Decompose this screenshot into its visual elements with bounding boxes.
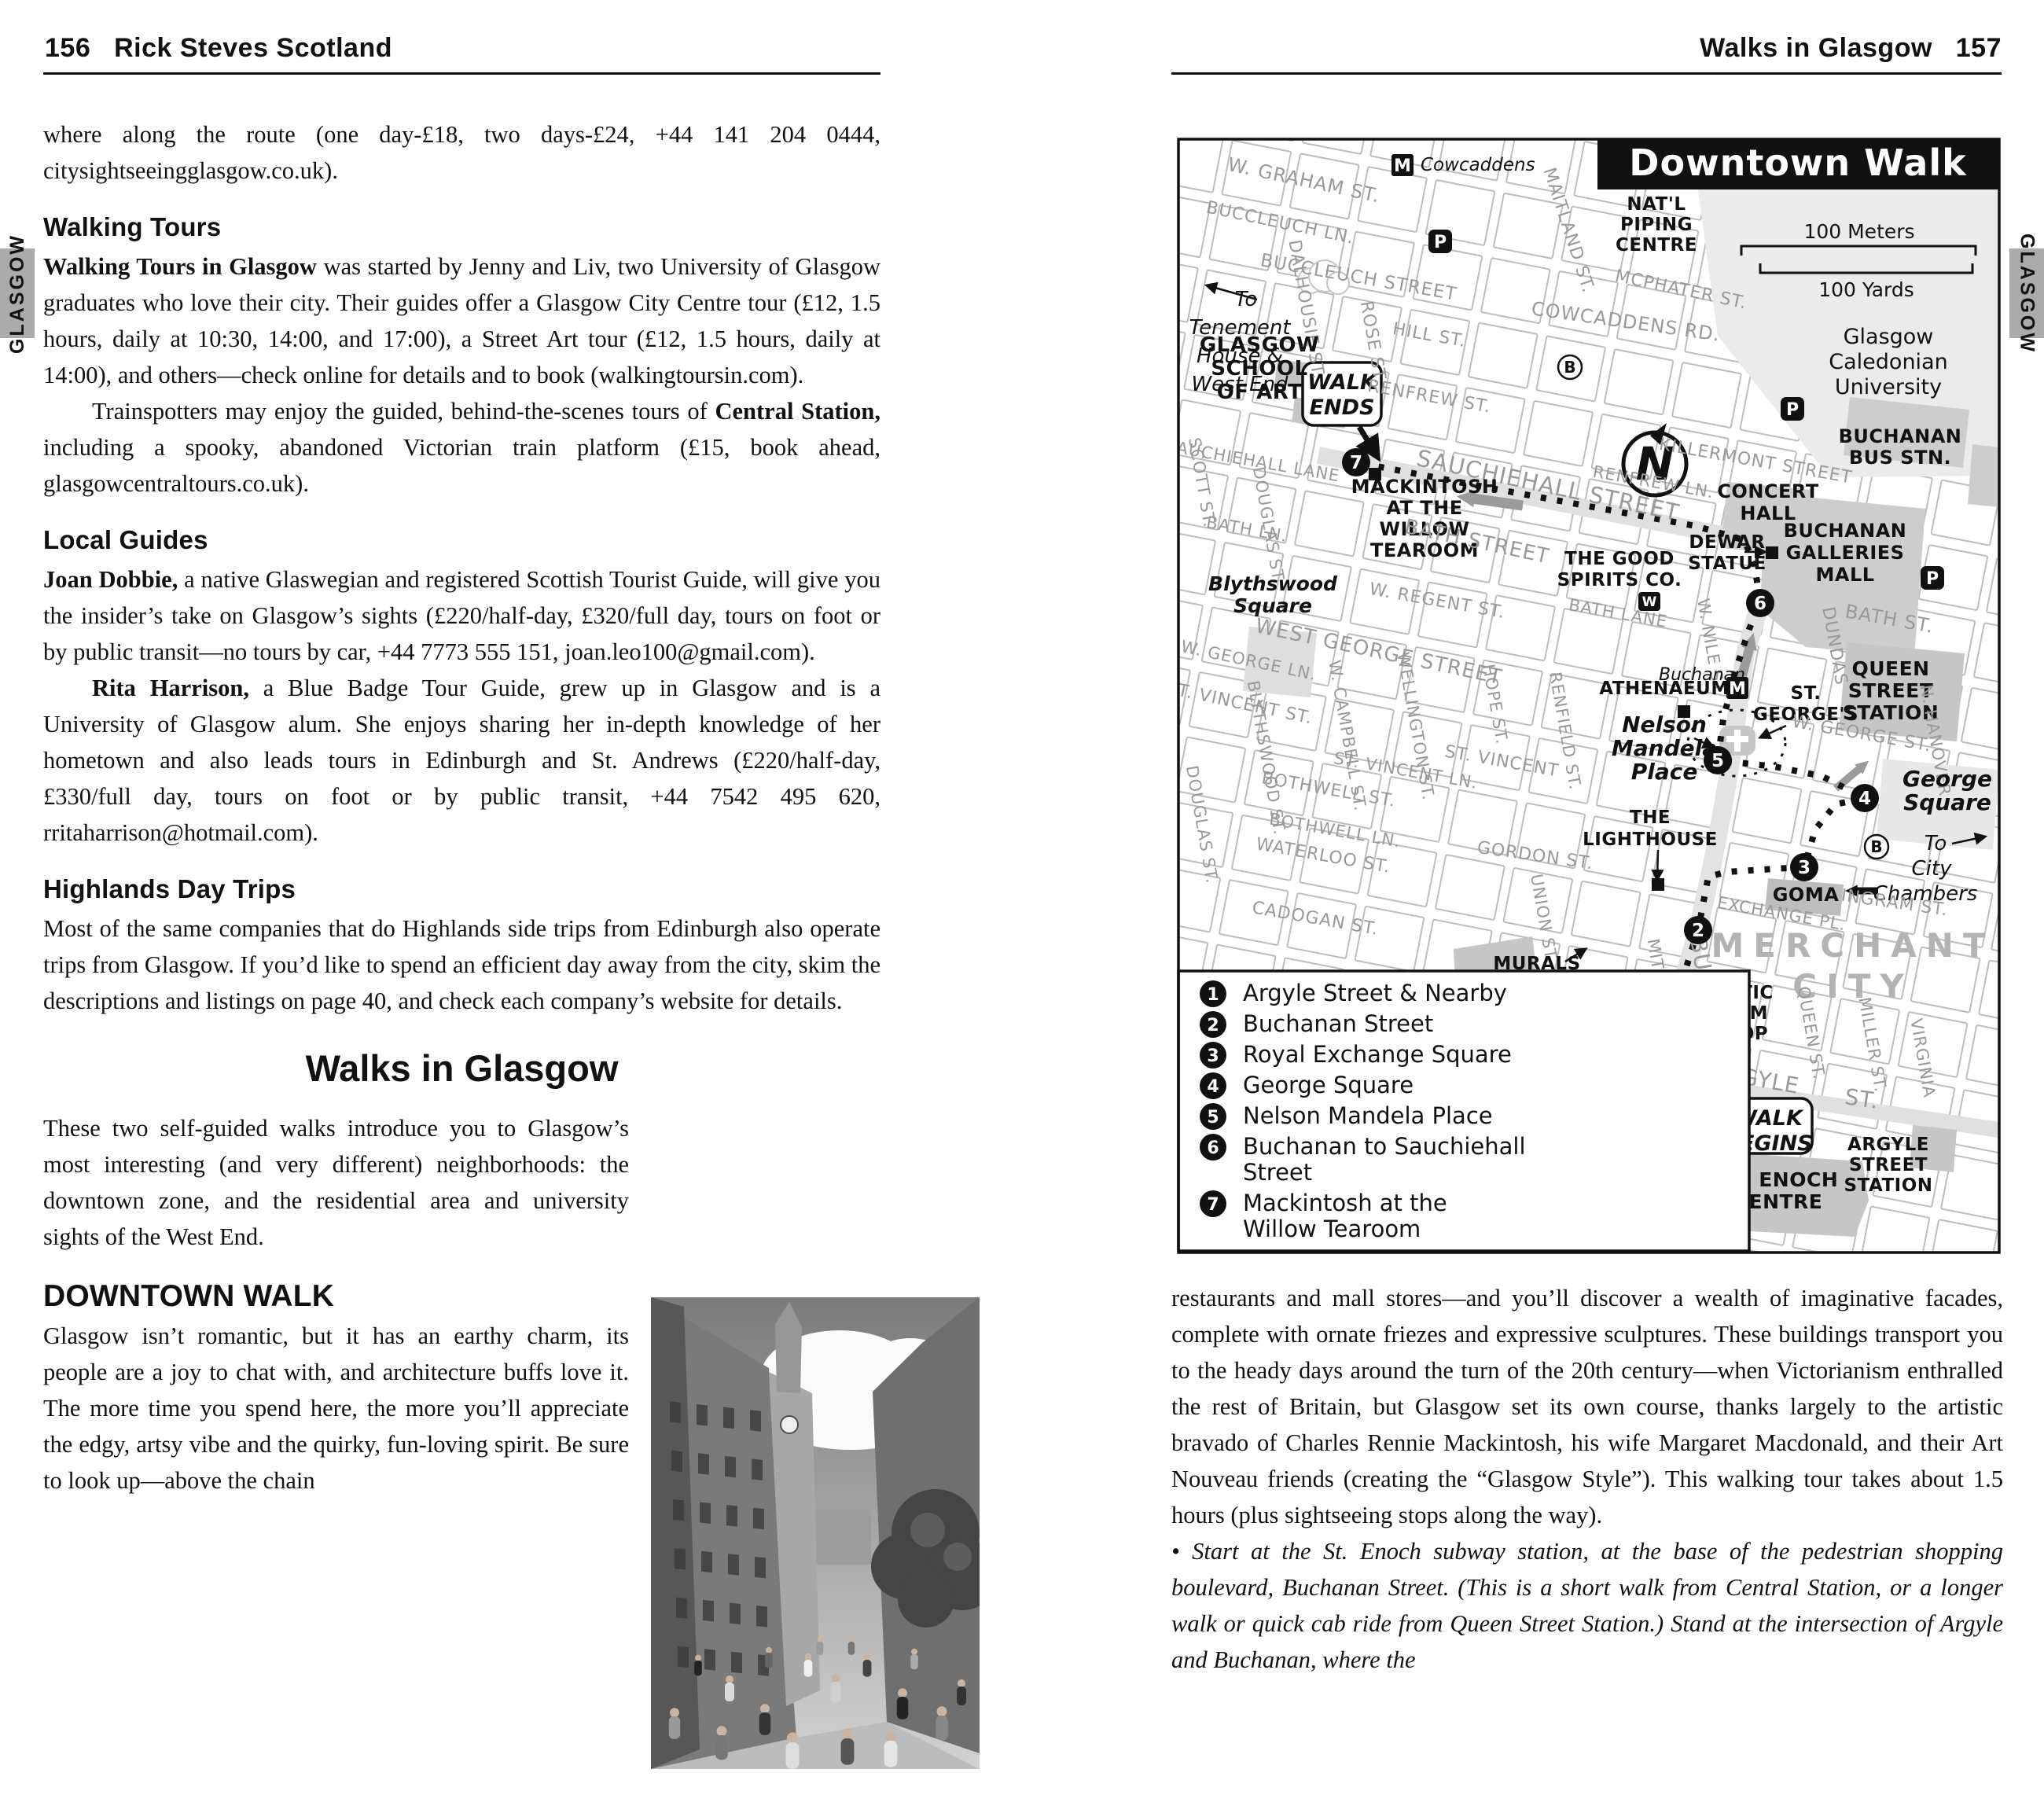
map-label: ARGYLE: [1847, 1135, 1929, 1155]
book-spread: 156 Rick Steves Scotland Walks in Glasgo…: [0, 0, 2044, 1817]
map-label: City: [1912, 857, 1953, 881]
map-legend: 1Argyle Street & Nearby2Buchanan Street3…: [1178, 971, 1749, 1251]
map-title: Downtown Walk: [1629, 142, 1967, 184]
map-label: STREET: [1849, 1155, 1928, 1175]
map-label: AT THE: [1386, 497, 1462, 519]
legend-item: Buchanan to Sauchiehall: [1243, 1133, 1526, 1160]
map-label: CENTRE: [1616, 235, 1697, 256]
svg-text:B: B: [1564, 358, 1575, 377]
map-label: MALL: [1815, 564, 1874, 586]
map-label: STATUE: [1688, 554, 1766, 574]
heading-highlands-day-trips: Highlands Day Trips: [43, 871, 880, 907]
heading-downtown-walk: DOWNTOWN WALK: [43, 1278, 629, 1315]
legend-item: Mackintosh at the: [1243, 1190, 1447, 1216]
svg-text:P: P: [1926, 569, 1939, 589]
left-running-head: 156 Rick Steves Scotland: [45, 33, 392, 64]
svg-text:6: 6: [1207, 1138, 1219, 1158]
svg-text:2: 2: [1207, 1016, 1219, 1035]
paragraph: Glasgow isn’t romantic, but it has an ea…: [43, 1318, 629, 1499]
svg-text:7: 7: [1207, 1195, 1219, 1215]
map-label: To: [1925, 832, 1947, 855]
svg-text:M: M: [1394, 156, 1411, 176]
map-label: ST.: [1844, 1083, 1881, 1114]
svg-text:4: 4: [1207, 1077, 1219, 1097]
heading-local-guides: Local Guides: [43, 522, 880, 558]
right-running-title: Walks in Glasgow: [1700, 33, 1932, 63]
map-label: GALLERIES: [1786, 542, 1905, 564]
map-label: THE GOOD: [1564, 549, 1675, 569]
map-label: BUCHANAN: [1839, 425, 1962, 447]
glasgow-tab-left: GLASGOW: [0, 248, 35, 338]
right-page-body: restaurants and mall stores—and you’ll d…: [1171, 1280, 2003, 1678]
right-header-rule: [1171, 72, 2002, 75]
map-label: Blythswood: [1208, 572, 1338, 595]
legend-item: Street: [1243, 1159, 1312, 1186]
map-label: CONCERT: [1717, 480, 1819, 502]
sight-marker: [1766, 546, 1778, 559]
map-label: NAT'L: [1627, 194, 1686, 215]
map-label: Nelson: [1622, 712, 1707, 737]
paragraph: Trainspotters may enjoy the guided, behi…: [43, 393, 880, 502]
svg-text:P: P: [1434, 233, 1447, 252]
legend-item: Willow Tearoom: [1243, 1216, 1421, 1242]
paragraph: Joan Dobbie, a native Glaswegian and reg…: [43, 561, 880, 670]
downtown-walk-map: NMMMPPPPBBWWALKENDSWALKBEGINSW. GRAHAM S…: [1177, 138, 2001, 1254]
paragraph: Rita Harrison, a Blue Badge Tour Guide, …: [43, 670, 880, 851]
svg-text:1: 1: [1207, 985, 1219, 1005]
svg-text:ENDS: ENDS: [1310, 395, 1375, 420]
map-label: GOMA: [1773, 884, 1840, 906]
paragraph: Walking Tours in Glasgow was started by …: [43, 248, 880, 393]
map-label: QUEEN: [1851, 657, 1929, 680]
map-label: Place: [1631, 759, 1698, 785]
map-label: LIGHTHOUSE: [1583, 829, 1718, 850]
svg-text:3: 3: [1207, 1046, 1219, 1066]
legend-item: Buchanan Street: [1243, 1010, 1433, 1037]
map-label: 100 Yards: [1818, 278, 1914, 301]
map-label: DEWAR: [1689, 532, 1765, 553]
svg-text:B: B: [1870, 837, 1882, 856]
map-label: George: [1902, 766, 1992, 792]
legend-item: Nelson Mandela Place: [1243, 1102, 1493, 1129]
heading-walking-tours: Walking Tours: [43, 209, 880, 245]
paragraph: restaurants and mall stores—and you’ll d…: [1171, 1280, 2003, 1533]
paragraph-start-direction: • Start at the St. Enoch subway station,…: [1171, 1533, 2003, 1678]
street-photo: [651, 1297, 980, 1769]
svg-text:7: 7: [1350, 453, 1362, 473]
map-label: ST.: [1791, 683, 1822, 704]
map-label: Cowcaddens: [1421, 155, 1535, 175]
paragraph: where along the route (one day-£18, two …: [43, 116, 880, 189]
map-label: Caledonian: [1829, 350, 1947, 374]
map-label: Square: [1233, 594, 1312, 617]
paragraph: These two self-guided walks introduce yo…: [43, 1110, 629, 1255]
left-page-body: where along the route (one day-£18, two …: [43, 116, 880, 1499]
map-title-bar: Downtown Walk: [1597, 139, 1999, 189]
svg-text:4: 4: [1858, 789, 1871, 809]
map-label: THE: [1630, 807, 1671, 828]
walks-intro-column: These two self-guided walks introduce yo…: [43, 1110, 629, 1499]
map-label: Mandela: [1612, 735, 1717, 761]
map-label: University: [1835, 375, 1942, 399]
map-label: STATION: [1844, 1175, 1932, 1196]
map-label: SPIRITS CO.: [1557, 570, 1682, 590]
svg-text:3: 3: [1798, 858, 1811, 878]
paragraph: Most of the same companies that do Highl…: [43, 910, 880, 1019]
right-running-head: Walks in Glasgow 157: [1171, 33, 2002, 64]
map-label: GLASGOW: [1200, 333, 1319, 357]
map-label: MACKINTOSH: [1351, 476, 1498, 498]
map-label: BUCHANAN: [1784, 520, 1907, 542]
map-label: Glasgow: [1844, 325, 1934, 349]
map-label: BUS STN.: [1849, 447, 1951, 469]
right-page-number: 157: [1956, 33, 2002, 63]
map-label: OF ART: [1217, 381, 1303, 404]
map-label: To: [1235, 288, 1258, 311]
section-title-walks-in-glasgow: Walks in Glasgow: [43, 1050, 880, 1087]
map-label: 100 Meters: [1803, 220, 1914, 243]
left-running-title: Rick Steves Scotland: [114, 33, 392, 63]
map-label: PIPING: [1620, 215, 1693, 235]
sight-marker: [1652, 878, 1664, 891]
svg-text:2: 2: [1692, 921, 1704, 941]
svg-text:5: 5: [1207, 1108, 1219, 1127]
map-label: SCHOOL: [1211, 357, 1307, 381]
svg-text:6: 6: [1754, 594, 1766, 614]
legend-item: Argyle Street & Nearby: [1243, 980, 1507, 1006]
map-building: [1968, 444, 1999, 507]
map-label: MERCHANT: [1711, 926, 1994, 965]
glasgow-tab-right: GLASGOW: [2009, 248, 2044, 338]
map-label: Buchanan: [1659, 665, 1745, 685]
map-label: Square: [1903, 789, 1991, 815]
left-buildings: [651, 1297, 820, 1769]
svg-text:P: P: [1786, 400, 1799, 420]
legend-item: Royal Exchange Square: [1243, 1041, 1512, 1068]
left-page-number: 156: [45, 33, 90, 63]
svg-text:5: 5: [1711, 751, 1724, 771]
left-header-rule: [43, 72, 880, 75]
legend-item: George Square: [1243, 1072, 1414, 1098]
